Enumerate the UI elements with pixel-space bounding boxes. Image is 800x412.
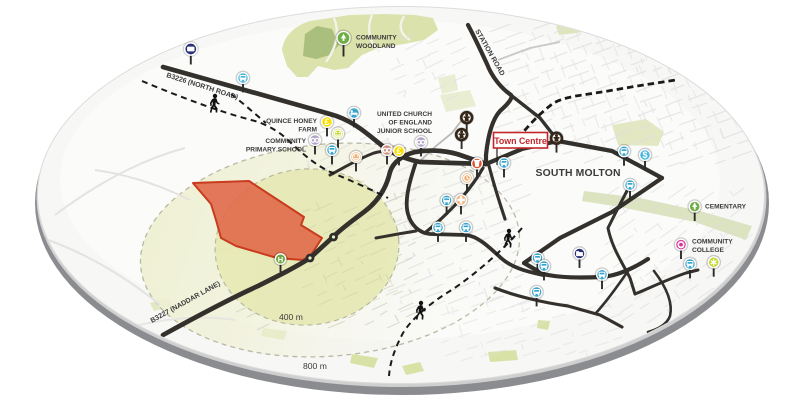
svg-text:PRIMARY SCHOOL: PRIMARY SCHOOL (246, 147, 306, 154)
svg-text:£: £ (396, 146, 401, 156)
svg-text:COMMUNITY: COMMUNITY (692, 239, 733, 246)
svg-text:OF ENGLAND: OF ENGLAND (388, 120, 432, 127)
svg-text:800 m: 800 m (303, 361, 327, 371)
svg-text:$: $ (642, 150, 647, 160)
svg-text:H: H (278, 255, 283, 264)
svg-text:COMMUNITY: COMMUNITY (265, 138, 306, 145)
svg-text:Town Centre: Town Centre (494, 136, 547, 146)
svg-text:WOODLAND: WOODLAND (356, 43, 396, 50)
svg-text:CEMENTARY: CEMENTARY (705, 204, 747, 211)
svg-text:COMMUNITY: COMMUNITY (356, 35, 397, 42)
svg-text:COLLEGE: COLLEGE (692, 247, 724, 254)
svg-text:400 m: 400 m (279, 312, 303, 322)
svg-text:SOUTH MOLTON: SOUTH MOLTON (536, 168, 621, 179)
svg-text:£: £ (324, 117, 329, 127)
svg-text:UNITED CHURCH: UNITED CHURCH (377, 111, 432, 118)
svg-text:FARM: FARM (298, 127, 317, 134)
svg-text:QUINCE HONEY: QUINCE HONEY (266, 118, 318, 125)
svg-text:JUNIOR SCHOOL: JUNIOR SCHOOL (377, 128, 432, 135)
